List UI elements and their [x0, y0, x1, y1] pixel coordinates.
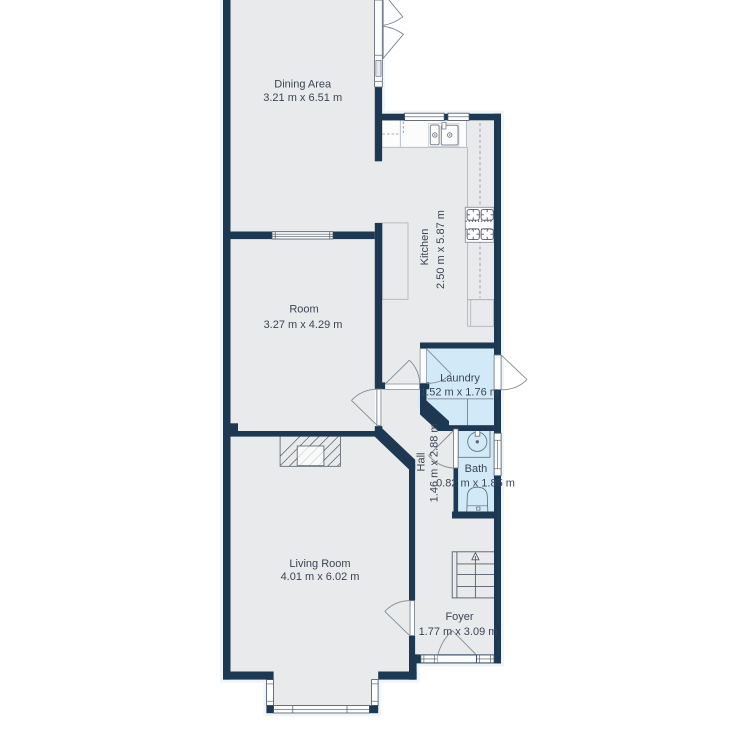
- svg-text:3.21 m x 6.51 m: 3.21 m x 6.51 m: [263, 92, 342, 104]
- svg-text:Bath: Bath: [465, 463, 488, 475]
- svg-text:Foyer: Foyer: [445, 611, 473, 623]
- svg-text:Living Room: Living Room: [289, 558, 350, 570]
- svg-text:Room: Room: [289, 304, 318, 316]
- svg-text:0.82 m x 1.85 m: 0.82 m x 1.85 m: [436, 478, 515, 490]
- svg-text:2.50 m x 5.87 m: 2.50 m x 5.87 m: [435, 210, 447, 289]
- svg-text:1.46 m x 2.88 m: 1.46 m x 2.88 m: [429, 423, 441, 502]
- svg-text:Dining Area: Dining Area: [274, 78, 332, 90]
- svg-text:1.52 m x 1.76 m: 1.52 m x 1.76 m: [420, 387, 499, 399]
- svg-text:Kitchen: Kitchen: [419, 229, 431, 266]
- svg-text:4.01 m x 6.02 m: 4.01 m x 6.02 m: [281, 571, 360, 583]
- svg-text:Hall: Hall: [416, 453, 428, 472]
- svg-text:1.77 m x 3.09 m: 1.77 m x 3.09 m: [419, 626, 498, 638]
- svg-text:Laundry: Laundry: [440, 372, 480, 384]
- svg-text:3.27 m x 4.29 m: 3.27 m x 4.29 m: [264, 319, 343, 331]
